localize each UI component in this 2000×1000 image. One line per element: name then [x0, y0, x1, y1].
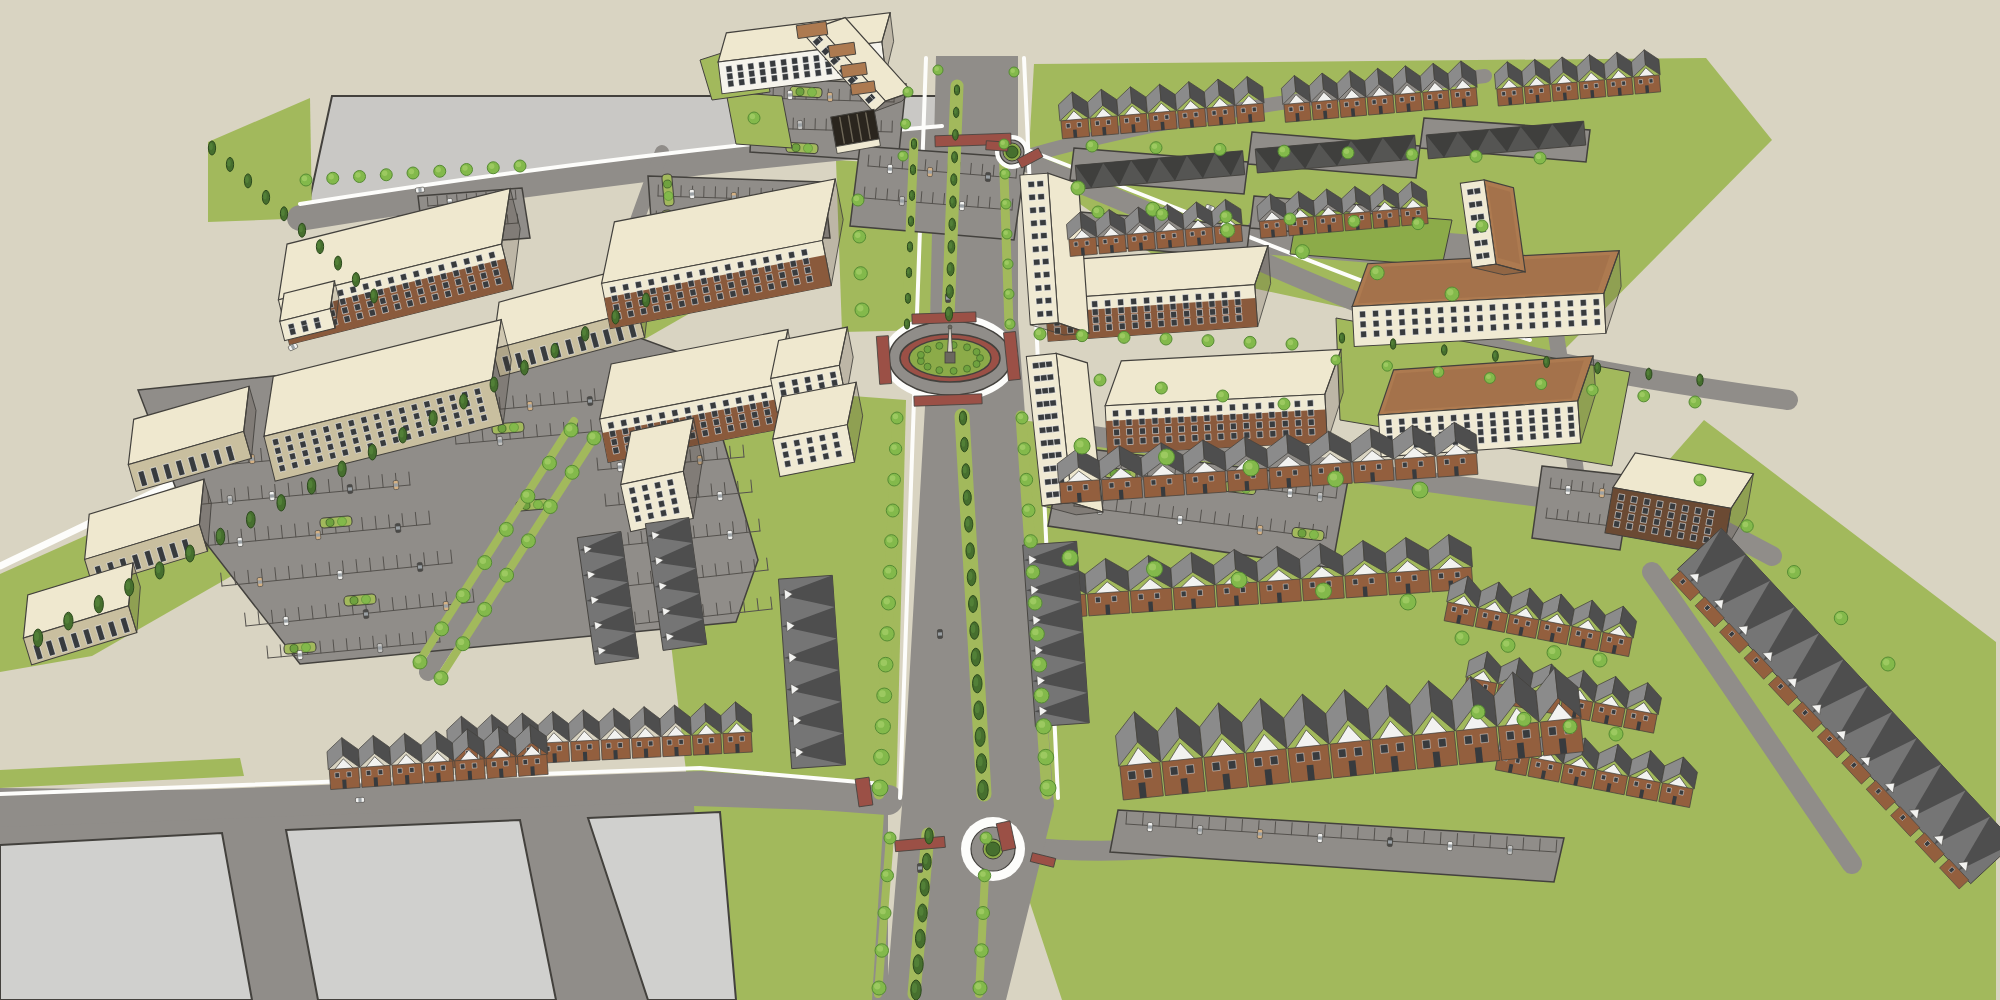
round-tree: [1000, 169, 1010, 179]
: [515, 190, 516, 199]
poplar-tree: [950, 196, 956, 208]
poplar-tree: [370, 289, 377, 303]
round-tree: [1741, 520, 1754, 533]
round-tree: [973, 981, 987, 995]
round-tree: [354, 171, 366, 183]
future-pad: [0, 833, 252, 1000]
round-tree: [999, 139, 1009, 149]
round-tree: [1036, 719, 1051, 734]
round-tree: [853, 230, 866, 243]
round-tree: [881, 869, 894, 882]
round-tree: [1348, 215, 1360, 227]
round-tree: [1638, 390, 1650, 402]
poplar-tree: [976, 754, 986, 774]
poplar-tree: [908, 216, 913, 226]
car: [717, 491, 723, 500]
poplar-tree: [277, 495, 286, 511]
round-tree: [1501, 638, 1515, 652]
car: [283, 616, 289, 625]
poplar-tree: [905, 293, 910, 303]
poplar-tree: [959, 411, 966, 425]
poplar-tree: [612, 310, 619, 324]
poplar-tree: [1544, 356, 1550, 367]
round-tree: [1243, 460, 1259, 476]
: [437, 196, 438, 205]
round-tree: [327, 172, 339, 184]
round-tree: [878, 907, 891, 920]
car: [917, 863, 922, 872]
car: [227, 495, 233, 504]
poplar-tree: [490, 377, 498, 392]
round-tree: [980, 832, 992, 844]
car: [347, 484, 353, 493]
round-tree: [854, 267, 867, 280]
poplar-tree: [1493, 351, 1499, 362]
round-tree: [1024, 535, 1037, 548]
round-tree: [882, 596, 896, 610]
round-tree: [514, 160, 526, 172]
round-tree: [1202, 335, 1214, 347]
round-tree: [891, 412, 903, 424]
poplar-tree: [970, 622, 979, 639]
round-tree: [1547, 646, 1561, 660]
poplar-tree: [226, 157, 233, 171]
round-tree: [1005, 319, 1015, 329]
car: [415, 187, 425, 193]
poplar-tree: [911, 139, 916, 149]
round-tree: [1382, 361, 1392, 371]
round-tree: [1032, 657, 1047, 672]
planting-island: [320, 516, 353, 529]
poplar-tree: [974, 701, 984, 720]
round-tree: [1074, 438, 1090, 454]
round-tree: [521, 489, 535, 503]
car: [257, 577, 263, 586]
round-tree: [435, 622, 449, 636]
poplar-tree: [338, 461, 346, 477]
monument-roundabout: [882, 314, 1018, 402]
round-tree: [978, 869, 991, 882]
car: [527, 401, 533, 410]
round-tree: [1286, 338, 1298, 350]
poplar-tree: [967, 569, 976, 586]
round-tree: [434, 671, 448, 685]
round-tree: [1278, 398, 1290, 410]
poplar-tree: [951, 174, 957, 186]
car: [1177, 515, 1183, 524]
car: [443, 601, 449, 610]
poplar-tree: [913, 955, 923, 974]
poplar-tree: [642, 293, 649, 307]
round-tree: [1018, 443, 1030, 455]
round-tree: [300, 174, 312, 186]
round-tree: [878, 657, 893, 672]
round-tree: [461, 164, 473, 176]
car: [1197, 825, 1203, 834]
poplar-tree: [581, 327, 588, 341]
round-tree: [1094, 374, 1106, 386]
round-tree: [1316, 583, 1332, 599]
car: [395, 523, 401, 532]
poplar-tree: [1442, 345, 1447, 356]
car: [887, 164, 892, 173]
: [427, 197, 428, 206]
poplar-tree: [316, 240, 323, 254]
round-tree: [1342, 147, 1354, 159]
poplar-tree: [918, 904, 927, 922]
round-tree: [1040, 780, 1056, 796]
round-tree: [1004, 289, 1014, 299]
future-pad: [286, 820, 556, 1000]
poplar-tree: [953, 107, 958, 117]
poplar-tree: [946, 285, 953, 299]
poplar-tree: [246, 511, 255, 528]
round-tree: [1009, 67, 1019, 77]
round-tree: [888, 473, 901, 486]
round-tree: [977, 907, 990, 920]
round-tree: [898, 151, 908, 161]
round-tree: [1331, 355, 1341, 365]
poplar-tree: [949, 218, 955, 230]
car: [1447, 841, 1453, 850]
round-tree: [1076, 330, 1088, 342]
poplar-tree: [334, 256, 341, 270]
car: [393, 480, 399, 489]
round-tree: [1221, 223, 1235, 237]
poplar-tree: [923, 853, 932, 870]
car: [377, 643, 383, 652]
round-tree: [901, 119, 911, 129]
poplar-tree: [952, 152, 958, 163]
car: [497, 436, 503, 445]
car: [959, 201, 964, 210]
round-tree: [1231, 572, 1247, 588]
round-tree: [1062, 550, 1078, 566]
poplar-tree: [953, 129, 959, 140]
car: [1287, 488, 1293, 497]
round-tree: [1412, 218, 1424, 230]
car: [297, 650, 303, 659]
car: [355, 797, 364, 802]
round-tree: [1400, 594, 1416, 610]
round-tree: [903, 87, 913, 97]
car: [1147, 822, 1153, 831]
round-tree: [885, 535, 898, 548]
brick-crosswalk: [914, 394, 982, 406]
car: [1387, 837, 1393, 846]
poplar-tree: [216, 528, 225, 545]
round-tree: [1071, 181, 1085, 195]
poplar-tree: [973, 675, 983, 693]
round-tree: [1406, 149, 1418, 161]
car: [1257, 525, 1263, 534]
poplar-tree: [368, 444, 376, 460]
car: [315, 530, 321, 539]
round-tree: [456, 589, 470, 603]
round-tree: [1534, 152, 1546, 164]
car: [1317, 833, 1323, 842]
car: [237, 537, 243, 546]
round-tree: [877, 688, 892, 703]
round-tree: [478, 556, 492, 570]
poplar-tree: [155, 562, 164, 579]
round-tree: [1536, 378, 1547, 389]
poplar-tree: [64, 612, 73, 630]
round-tree: [1147, 561, 1163, 577]
car: [797, 120, 802, 129]
round-tree: [564, 423, 578, 437]
poplar-tree: [978, 780, 988, 800]
planting-island: [790, 86, 822, 98]
round-tree: [500, 568, 514, 582]
car: [269, 491, 275, 500]
poplar-tree: [911, 980, 921, 1000]
poplar-tree: [909, 190, 914, 200]
round-tree: [542, 456, 556, 470]
round-tree: [1220, 211, 1232, 223]
round-tree: [1086, 140, 1098, 152]
round-tree: [521, 534, 535, 548]
round-tree: [1278, 145, 1290, 157]
round-tree: [1689, 396, 1701, 408]
brick-crosswalk: [912, 312, 976, 324]
round-tree: [852, 194, 864, 206]
round-tree: [407, 167, 419, 179]
round-tree: [1470, 150, 1482, 162]
round-tree: [587, 431, 601, 445]
round-tree: [889, 443, 901, 455]
poplar-tree: [920, 879, 929, 896]
car: [417, 562, 423, 571]
car: [787, 90, 792, 99]
round-tree: [1118, 331, 1130, 343]
car: [937, 629, 942, 638]
round-tree: [875, 719, 890, 734]
car: [899, 196, 904, 205]
poplar-tree: [125, 579, 134, 596]
car: [927, 167, 932, 176]
poplar-tree: [965, 516, 973, 532]
poplar-tree: [551, 343, 559, 358]
round-tree: [478, 602, 492, 616]
car: [1565, 485, 1571, 494]
round-tree: [1150, 142, 1162, 154]
round-tree: [1026, 565, 1040, 579]
rendering-viewport: [0, 0, 2000, 1000]
poplar-tree: [971, 648, 980, 666]
round-tree: [1034, 688, 1049, 703]
round-tree: [1034, 328, 1046, 340]
poplar-tree: [966, 543, 974, 559]
round-tree: [1092, 206, 1104, 218]
round-tree: [872, 780, 888, 796]
poplar-tree: [33, 629, 42, 647]
planting-island: [662, 174, 675, 207]
poplar-tree: [915, 929, 925, 948]
poplar-tree: [298, 223, 305, 237]
round-tree: [1593, 653, 1607, 667]
round-tree: [487, 162, 499, 174]
car: [1599, 488, 1605, 497]
poplar-tree: [521, 360, 529, 375]
round-tree: [1370, 266, 1384, 280]
round-tree: [380, 169, 392, 181]
round-tree: [1002, 229, 1012, 239]
round-tree: [1517, 712, 1531, 726]
poplar-tree: [948, 240, 955, 253]
car: [363, 609, 369, 618]
round-tree: [1022, 504, 1035, 517]
round-tree: [1159, 449, 1175, 465]
car: [727, 530, 733, 539]
poplar-tree: [975, 727, 985, 746]
poplar-tree: [925, 828, 933, 844]
poplar-tree: [208, 141, 215, 155]
car: [1317, 492, 1323, 501]
round-tree: [872, 981, 886, 995]
round-tree: [933, 65, 943, 75]
round-tree: [886, 504, 899, 517]
poplar-tree: [186, 545, 195, 562]
round-tree: [1412, 482, 1428, 498]
round-tree: [1284, 213, 1296, 225]
round-tree: [1433, 367, 1444, 378]
round-tree: [1016, 412, 1028, 424]
round-tree: [1881, 657, 1895, 671]
round-tree: [874, 749, 890, 765]
round-tree: [1455, 631, 1469, 645]
round-tree: [1244, 336, 1256, 348]
round-tree: [1160, 333, 1172, 345]
poplar-tree: [906, 268, 911, 278]
round-tree: [456, 637, 470, 651]
poplar-tree: [307, 478, 315, 494]
round-tree: [748, 112, 760, 124]
car: [337, 570, 343, 579]
round-tree: [543, 500, 557, 514]
round-tree: [883, 565, 897, 579]
round-tree: [880, 627, 894, 641]
car: [689, 189, 695, 198]
round-tree: [855, 303, 869, 317]
poplar-tree: [904, 319, 909, 329]
round-tree: [1471, 705, 1485, 719]
round-tree: [1328, 471, 1344, 487]
poplar-tree: [1697, 374, 1703, 386]
poplar-tree: [352, 273, 359, 287]
round-tree: [1445, 287, 1459, 301]
poplar-tree: [1646, 368, 1652, 380]
round-tree: [1217, 390, 1229, 402]
round-tree: [1476, 220, 1488, 232]
car: [827, 92, 832, 101]
poplar-tree: [969, 596, 978, 613]
poplar-tree: [947, 263, 954, 276]
round-tree: [1020, 473, 1033, 486]
round-tree: [1038, 749, 1054, 765]
round-tree: [1609, 727, 1623, 741]
round-tree: [434, 165, 446, 177]
round-tree: [1003, 259, 1013, 269]
poplar-tree: [954, 85, 959, 95]
poplar-tree: [429, 411, 437, 426]
parking-deck: [831, 109, 881, 153]
site-plan-rendering: [0, 0, 2000, 1000]
round-tree: [499, 522, 513, 536]
mini-roundabout: [961, 817, 1025, 881]
poplar-tree: [1595, 362, 1601, 373]
poplar-tree: [945, 307, 952, 321]
round-tree: [1563, 720, 1577, 734]
round-tree: [1694, 474, 1706, 486]
poplar-tree: [961, 437, 969, 451]
planting-island: [344, 594, 377, 607]
round-tree: [1001, 199, 1011, 209]
poplar-tree: [1390, 339, 1395, 349]
round-tree: [1484, 373, 1495, 384]
poplar-tree: [963, 490, 971, 505]
car: [1257, 829, 1263, 838]
round-tree: [1028, 596, 1042, 610]
poplar-tree: [1339, 333, 1344, 343]
round-tree: [1155, 382, 1167, 394]
poplar-tree: [399, 427, 407, 443]
round-tree: [1834, 611, 1848, 625]
round-tree: [1156, 208, 1168, 220]
round-tree: [884, 832, 896, 844]
poplar-tree: [262, 190, 269, 204]
poplar-tree: [460, 394, 468, 409]
round-tree: [1587, 384, 1598, 395]
round-tree: [413, 655, 427, 669]
round-tree: [565, 465, 579, 479]
poplar-tree: [280, 207, 287, 221]
car: [1507, 845, 1513, 854]
poplar-tree: [907, 242, 912, 252]
car: [617, 462, 623, 471]
poplar-tree: [910, 165, 915, 175]
round-tree: [1295, 245, 1309, 259]
poplar-tree: [244, 174, 251, 188]
car: [587, 396, 593, 405]
round-tree: [1788, 566, 1801, 579]
round-tree: [875, 944, 889, 958]
round-tree: [1030, 627, 1044, 641]
round-tree: [975, 944, 989, 958]
car: [985, 172, 990, 181]
poplar-tree: [962, 464, 970, 479]
round-tree: [1214, 143, 1226, 155]
poplar-tree: [94, 595, 103, 613]
